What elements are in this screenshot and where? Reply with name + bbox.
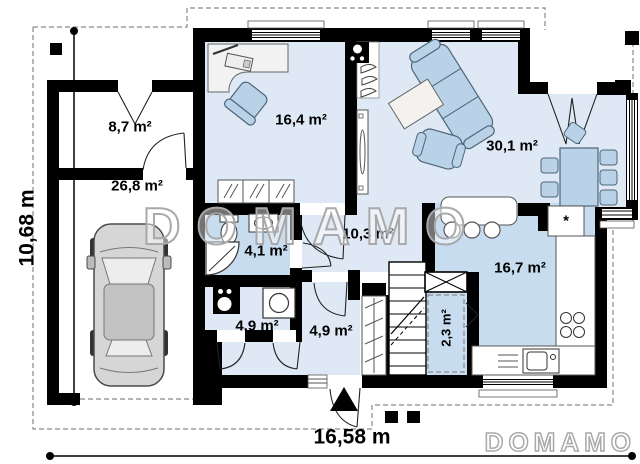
office-window: [248, 21, 324, 40]
entry-side-window: [308, 375, 327, 388]
chair: [600, 150, 617, 165]
chair: [541, 182, 558, 197]
wall: [348, 270, 360, 300]
room-label-utility: 4,9 m²: [235, 319, 278, 334]
column-porch-1: [385, 411, 398, 423]
wall: [595, 207, 607, 388]
car-mirror: [87, 256, 95, 269]
room-label-storage: 8,7 m²: [108, 120, 151, 135]
watermark-center: DOMAMO: [143, 197, 482, 257]
wall: [296, 330, 302, 342]
chair: [541, 158, 558, 173]
column-top-right: [625, 31, 639, 45]
floor-plan-page: 8,7 m² 26,8 m² 16,4 m² 30,1 m² 4,1 m² 10…: [0, 0, 640, 464]
boiler: [213, 285, 240, 314]
ventilation-duct: [425, 272, 467, 292]
wall: [345, 42, 357, 215]
wall: [518, 82, 548, 94]
column-top-left: [50, 43, 62, 55]
wall: [222, 375, 308, 388]
chair: [600, 190, 617, 205]
storage-garage-door: [143, 133, 186, 170]
wall: [597, 82, 617, 95]
entry-floor-strip: [222, 342, 302, 375]
wall: [47, 80, 118, 92]
chair: [600, 170, 617, 185]
washing-machine: [263, 288, 295, 318]
room-label-entry: 4,9 m²: [309, 324, 352, 339]
hall-closet: [362, 296, 386, 375]
wall: [47, 80, 59, 405]
watermark-corner: DOMAMO: [485, 427, 636, 458]
dimension-height: 10,68 m: [17, 189, 38, 266]
room-label-office: 16,4 m²: [275, 113, 327, 128]
car-roof: [104, 284, 154, 340]
living-window-2: [478, 21, 524, 40]
kitchen-window: [479, 377, 557, 397]
column-porch-2: [407, 411, 420, 423]
fridge-symbol: *: [563, 214, 569, 229]
entrance-arrow: [330, 387, 358, 411]
car-rear-window: [106, 340, 152, 356]
dining-table: [560, 148, 598, 206]
room-label-living: 30,1 m²: [486, 139, 538, 154]
dimension-width: 16,58 m: [313, 427, 390, 448]
car-windshield: [102, 258, 156, 284]
dining-side-window: [627, 100, 637, 200]
stairs: [389, 262, 426, 375]
radiator: [357, 110, 368, 194]
room-label-garage: 26,8 m²: [111, 179, 163, 194]
wall: [615, 80, 631, 95]
wall: [553, 375, 607, 388]
wall: [362, 375, 483, 388]
living-window-1: [428, 21, 474, 40]
wall: [302, 270, 312, 282]
wall: [205, 330, 217, 342]
car-mirror: [163, 256, 171, 269]
wall: [362, 283, 386, 296]
room-label-kitchen: 16,7 m²: [494, 261, 546, 276]
bar-stool: [484, 222, 500, 238]
room-label-pantry: 2,3 m²: [440, 309, 453, 347]
